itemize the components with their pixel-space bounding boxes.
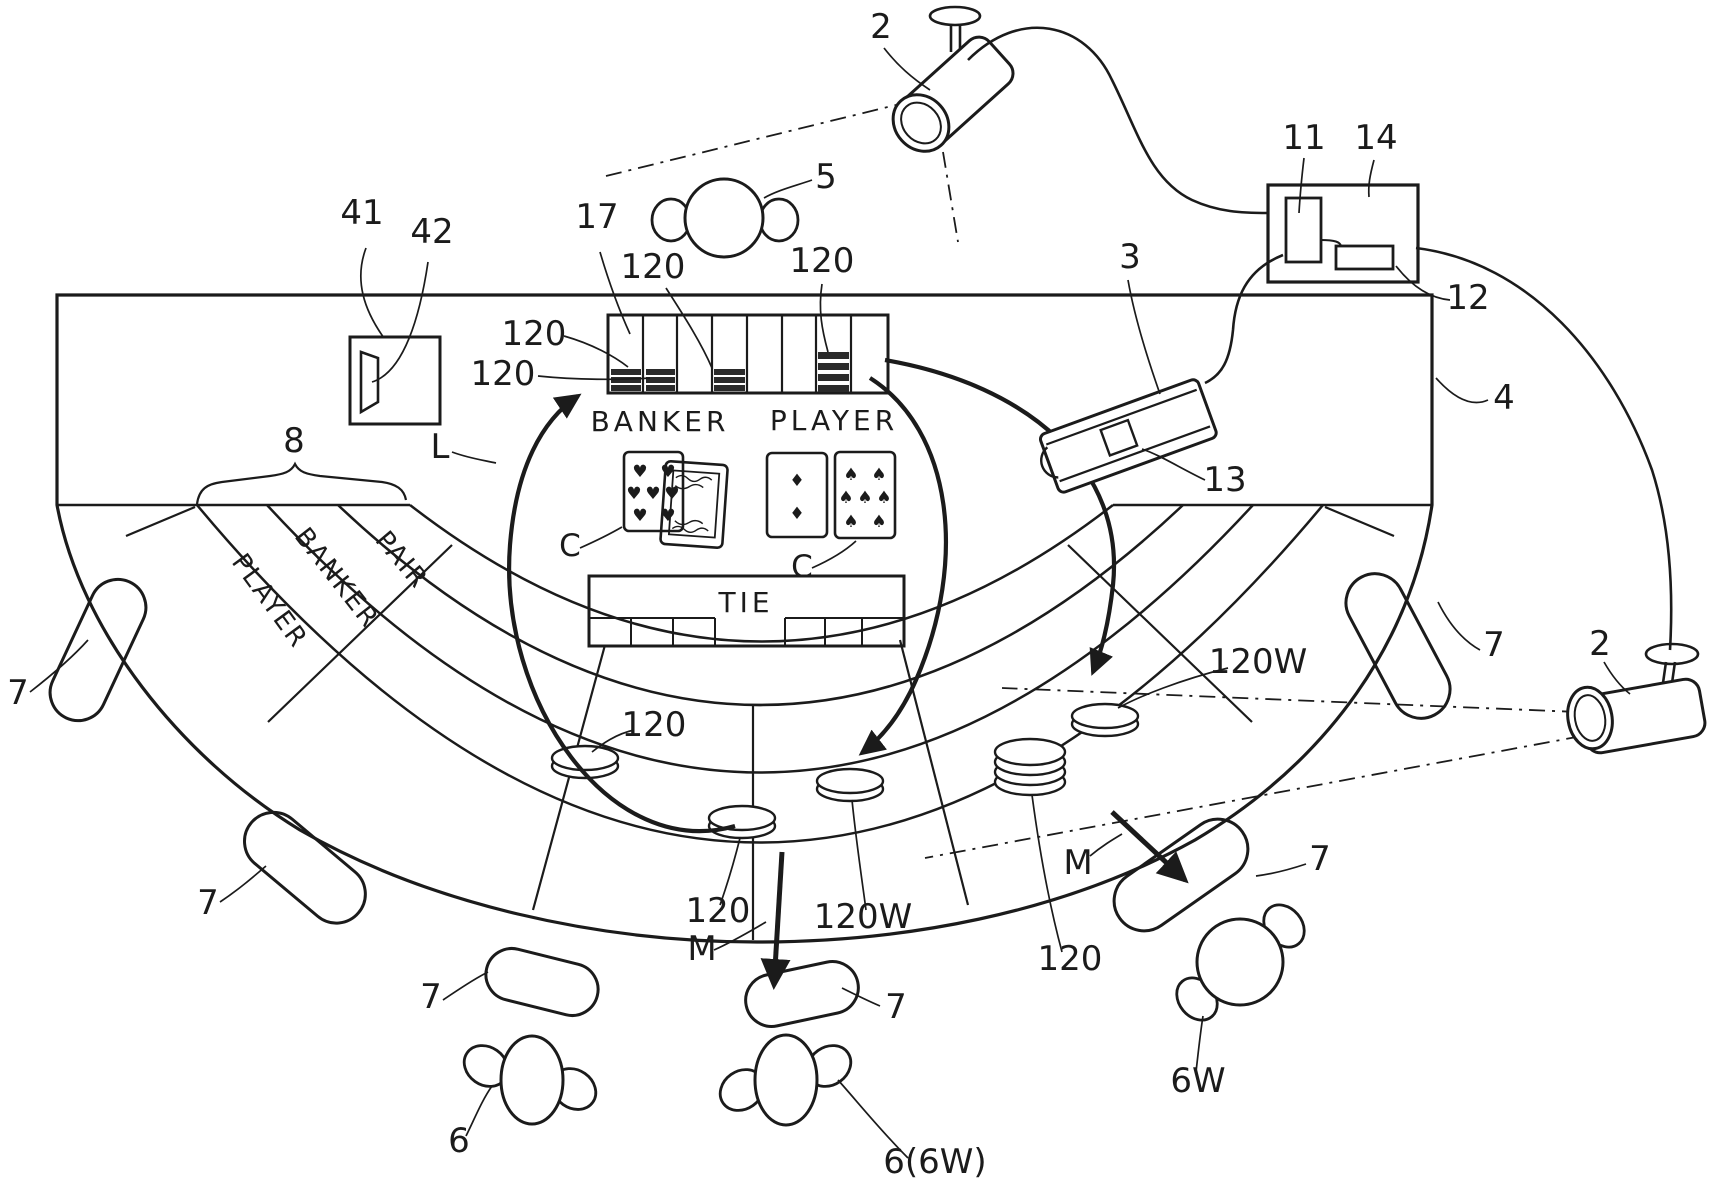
bet-arc-outer <box>197 505 1323 843</box>
svg-text:♠: ♠ <box>871 512 886 532</box>
divider-right-1 <box>900 640 968 905</box>
label-chip-bottom: 120 <box>686 891 751 931</box>
player-area-label: PLAYER <box>770 404 898 437</box>
label-memory: 12 <box>1446 278 1489 318</box>
player-bottom-right <box>712 1035 858 1125</box>
chair-far-left <box>41 570 155 730</box>
label-camera-right: 2 <box>1589 624 1611 664</box>
svg-text:♥: ♥ <box>632 462 647 482</box>
divider-right-3 <box>1325 507 1394 536</box>
svg-text:♥: ♥ <box>664 484 679 504</box>
tray-chip-stacks <box>611 352 849 392</box>
svg-text:♥: ♥ <box>660 462 675 482</box>
chair-lower-left <box>233 800 378 934</box>
label-chair-upper-right: 7 <box>1483 625 1505 665</box>
control-box <box>1268 185 1418 282</box>
label-chair-bottom-left: 7 <box>420 977 442 1017</box>
label-bet-areas-8: 8 <box>283 421 305 461</box>
label-chair-far-left: 7 <box>7 673 29 713</box>
chair-bottom-left <box>480 943 603 1021</box>
player-walking <box>1168 897 1312 1028</box>
label-player-left: 6 <box>448 1121 470 1161</box>
label-layout: L <box>431 427 450 467</box>
svg-text:♠: ♠ <box>857 488 872 508</box>
dealer <box>652 179 798 257</box>
divider-right-2 <box>1068 545 1252 722</box>
sight-top-2 <box>943 152 958 242</box>
chair-bottom-right <box>741 957 863 1032</box>
label-chair-right: 7 <box>1309 839 1331 879</box>
chip-right <box>1072 704 1138 736</box>
chip-center-right <box>817 769 883 801</box>
label-control-unit: 11 <box>1282 118 1325 158</box>
display-slot-shape <box>361 352 378 412</box>
label-shoe-reader: 13 <box>1203 460 1246 500</box>
chip-tray <box>608 315 888 393</box>
label-control-box: 14 <box>1354 118 1397 158</box>
svg-text:♥: ♥ <box>645 484 660 504</box>
label-move-center: M <box>687 929 716 969</box>
label-move-right: M <box>1063 843 1092 883</box>
cable-topcam-to-box <box>968 28 1268 213</box>
chip-center <box>709 806 775 838</box>
label-chip-tray-b: 120 <box>790 241 855 281</box>
tie-label: TIE <box>717 586 773 619</box>
label-display-slot: 42 <box>410 212 453 252</box>
camera-top-mount-disc <box>930 7 980 25</box>
banker-cards: ♥♥ ♥♥♥ ♥♥ <box>624 452 728 548</box>
label-chip-win-right: 120W <box>1209 642 1308 682</box>
svg-text:♠: ♠ <box>843 465 858 485</box>
arrow-move-off-center <box>774 852 782 985</box>
label-display: 41 <box>340 193 383 233</box>
label-chip-tray-c: 120 <box>502 314 567 354</box>
sight-top-1 <box>606 104 900 176</box>
player-cards: ♦ ♦ ♠♠ ♠♠♠ ♠♠ <box>767 452 895 538</box>
svg-text:♥: ♥ <box>660 506 675 526</box>
card-shoe <box>1032 378 1218 496</box>
dealer-head <box>685 179 763 257</box>
camera-top <box>882 7 1019 163</box>
banker-card-7h-pips: ♥♥ ♥♥♥ ♥♥ <box>626 462 679 526</box>
dealer-shoulder-right <box>760 199 798 241</box>
player-card-2d <box>767 453 827 537</box>
baccarat-table-diagram: PLAYER BANKER PAIR 8 BANKER PLAYER <box>0 0 1709 1185</box>
card-label-player: C <box>791 549 813 585</box>
svg-text:♥: ♥ <box>632 506 647 526</box>
label-tray: 17 <box>575 197 618 237</box>
svg-text:♠: ♠ <box>876 488 891 508</box>
card-label-banker: C <box>559 528 581 564</box>
chip-stack <box>995 739 1065 795</box>
label-player-right: 6(6W) <box>883 1142 986 1182</box>
label-shoe: 3 <box>1119 237 1141 277</box>
svg-text:♥: ♥ <box>626 484 641 504</box>
svg-text:♠: ♠ <box>838 488 853 508</box>
camera-right <box>1563 644 1707 755</box>
band-banker-label: BANKER <box>288 522 385 634</box>
svg-text:♠: ♠ <box>871 465 886 485</box>
label-chip-win-bottom: 120W <box>814 897 913 937</box>
player-card-2d-pips: ♦ ♦ <box>789 471 804 524</box>
player-br-head <box>755 1035 817 1125</box>
label-chip-tray-a: 120 <box>621 247 686 287</box>
camera-right-mount-disc <box>1646 644 1698 664</box>
label-table: 4 <box>1493 378 1515 418</box>
tie-area: TIE <box>589 576 904 646</box>
band-pair-label: PAIR <box>369 526 434 595</box>
player-card-7s-pips: ♠♠ ♠♠♠ ♠♠ <box>838 465 891 532</box>
brace-bet-areas <box>197 464 406 504</box>
label-chair-lower-left: 7 <box>197 883 219 923</box>
band-player-label: PLAYER <box>225 548 313 654</box>
arrow-move-off-right <box>1112 812 1185 880</box>
label-chair-bottom-right: 7 <box>885 987 907 1027</box>
label-dealer: 5 <box>815 157 837 197</box>
label-chip-tray-d: 120 <box>471 354 536 394</box>
label-camera-top: 2 <box>870 7 892 47</box>
banker-area-label: BANKER <box>591 405 730 438</box>
svg-text:♦: ♦ <box>789 471 804 491</box>
divider-left-3 <box>126 507 195 536</box>
arrow-pay-right <box>885 360 1114 672</box>
display-device <box>350 337 440 424</box>
control-unit-rect <box>1286 198 1321 262</box>
arrow-collect-to-tray <box>509 396 735 831</box>
label-chip-stack: 120 <box>1038 939 1103 979</box>
label-chip-left: 120 <box>622 705 687 745</box>
patent-figure: PLAYER BANKER PAIR 8 BANKER PLAYER <box>0 0 1709 1185</box>
svg-text:♦: ♦ <box>789 504 804 524</box>
svg-text:♠: ♠ <box>843 512 858 532</box>
player-w-head <box>1197 919 1283 1005</box>
label-player-walking: 6W <box>1170 1061 1225 1101</box>
memory-unit-rect <box>1336 246 1393 269</box>
player-bl-head <box>501 1036 563 1124</box>
